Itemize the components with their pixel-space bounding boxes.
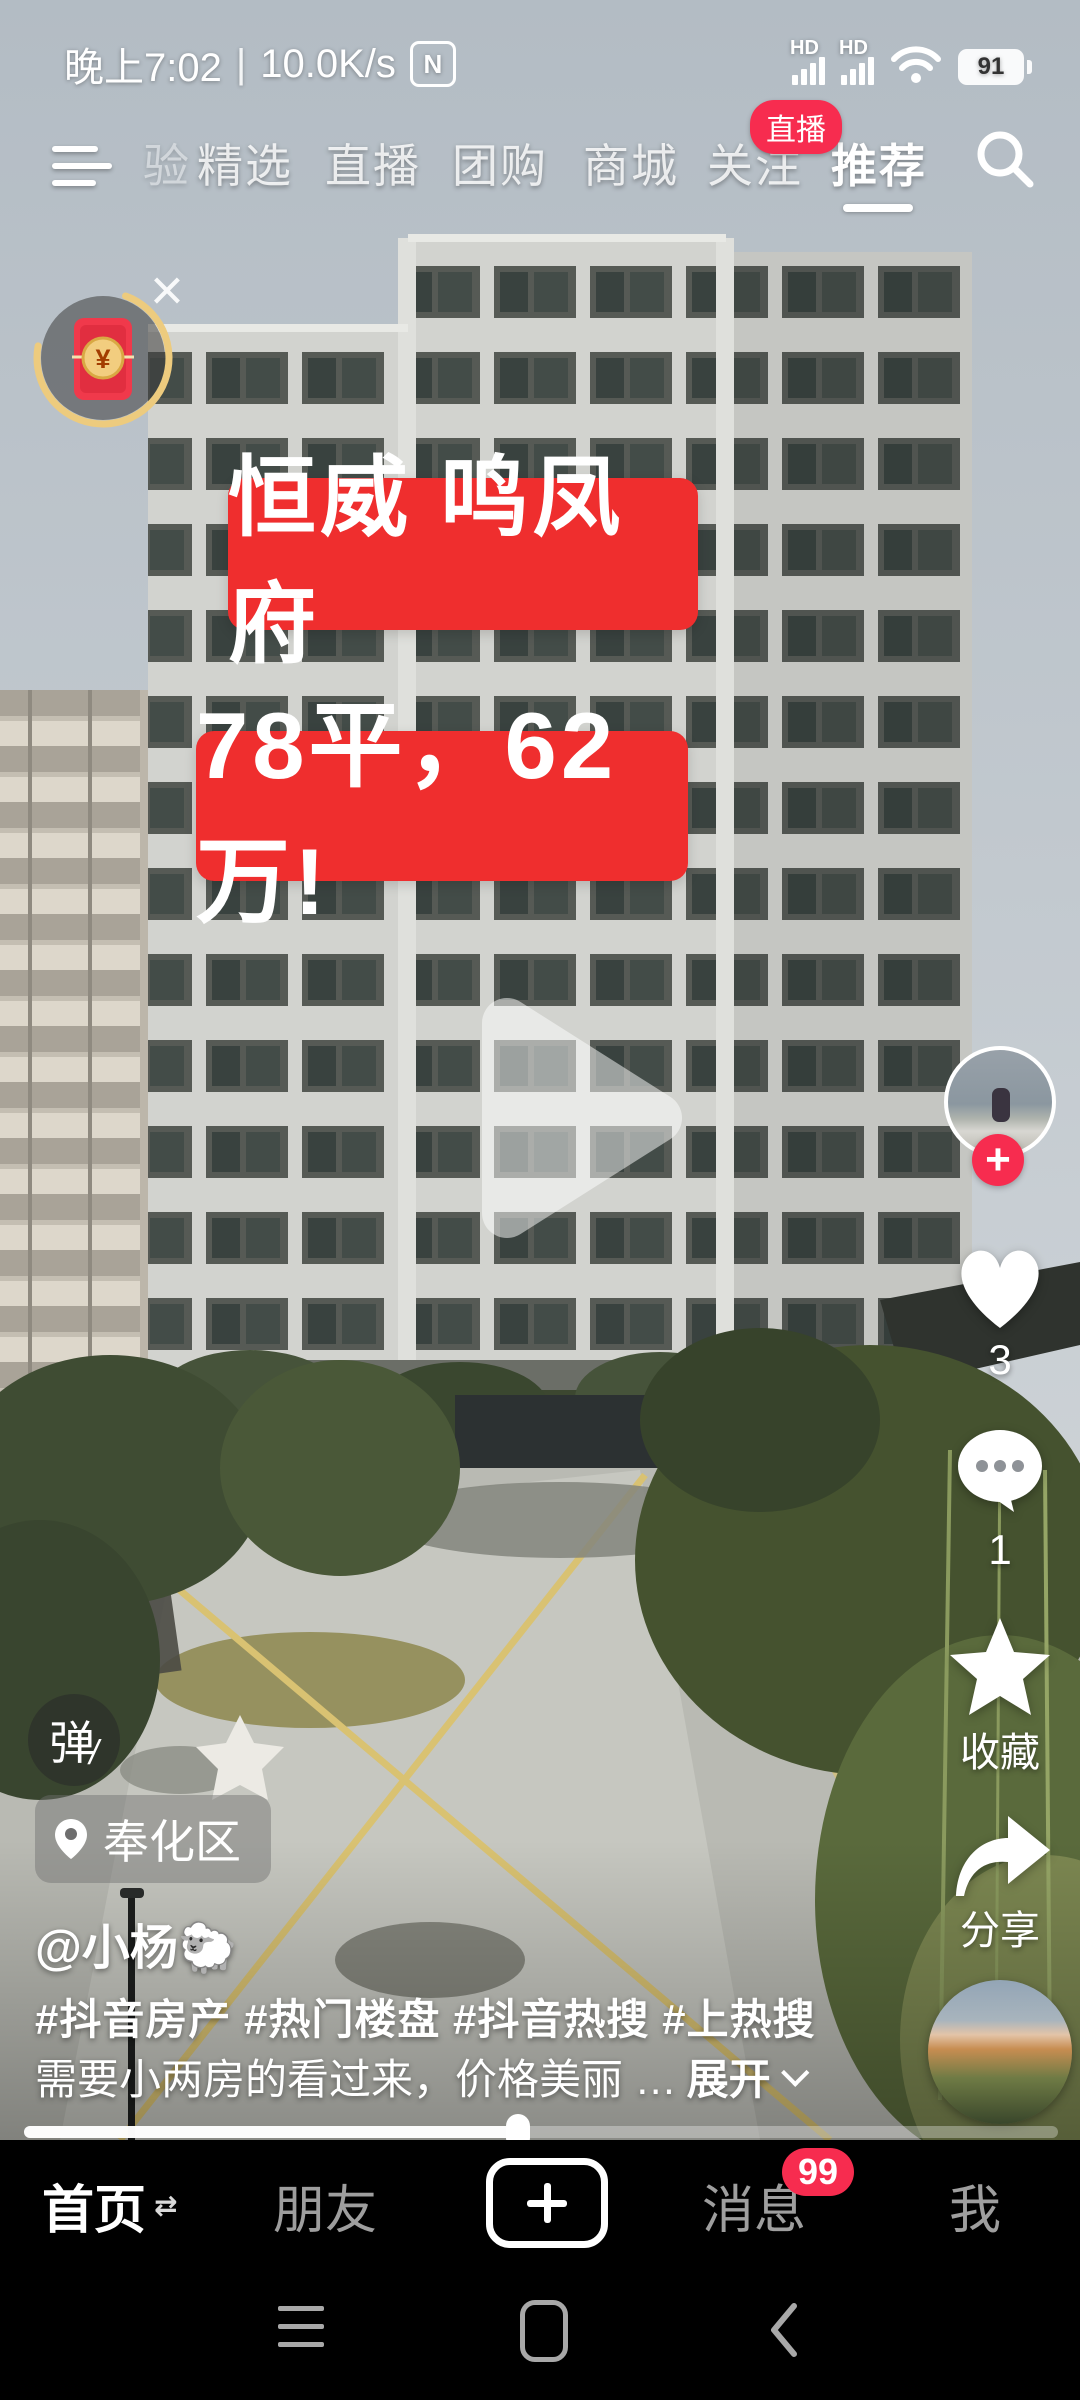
video-progress-fill [24, 2126, 516, 2138]
nfc-icon: N [410, 41, 456, 87]
coin-yuan-symbol: ¥ [95, 344, 110, 374]
create-post-button[interactable] [486, 2158, 608, 2248]
favorite-label: 收藏 [900, 1720, 1080, 1778]
network-speed: 10.0K/s [260, 42, 396, 87]
location-label: 奉化区 [103, 1806, 241, 1872]
danmu-toggle[interactable]: 弹 / [28, 1694, 120, 1786]
expand-button[interactable]: 展开 [687, 2046, 771, 2107]
hd-label: HD [790, 37, 819, 60]
tab-partial[interactable]: 验 [143, 130, 191, 196]
clock: 晚上7:02 [64, 35, 222, 93]
description-text: 需要小两房的看过来，价格美丽 … [35, 2046, 677, 2107]
live-badge[interactable]: 直播 [750, 100, 842, 154]
wifi-icon [890, 43, 942, 85]
home-switch-icon: ⇄ [154, 2189, 177, 2222]
active-tab-underline [843, 204, 913, 212]
douyin-app-screen: 晚上7:02 | 10.0K/s N HD HD 91 [0, 0, 1080, 2400]
favorite-star-icon[interactable] [946, 1616, 1054, 1718]
tab-featured[interactable]: 精选 [197, 130, 293, 196]
nav-me[interactable]: 我 [949, 2168, 1001, 2243]
comment-count: 1 [900, 1526, 1080, 1574]
tab-recommend[interactable]: 推荐 [831, 130, 927, 196]
comment-icon[interactable] [952, 1424, 1048, 1520]
status-divider: | [236, 42, 246, 87]
battery-icon: 91 [958, 49, 1024, 85]
nav-home[interactable]: 首页 ⇄ [42, 2168, 177, 2243]
author-username[interactable]: @小杨🐑 [35, 1908, 238, 1978]
share-label: 分享 [900, 1898, 1080, 1956]
nav-home-label: 首页 [42, 2168, 146, 2243]
search-icon[interactable] [972, 126, 1038, 192]
red-packet-close-icon[interactable]: × [150, 262, 184, 320]
hd-label: HD [839, 37, 868, 60]
play-icon[interactable] [462, 988, 692, 1248]
location-pin-icon [53, 1817, 89, 1861]
caption-description: 需要小两房的看过来，价格美丽 … 展开 [35, 2046, 801, 2107]
menu-icon[interactable] [52, 146, 114, 197]
video-price-banner: 78平，62万! [196, 731, 688, 881]
nav-friends[interactable]: 朋友 [273, 2168, 377, 2243]
tab-live[interactable]: 直播 [325, 130, 421, 196]
signal-sim2-icon: HD [841, 43, 874, 85]
like-count: 3 [900, 1336, 1080, 1384]
caption-hashtags[interactable]: #抖音房产 #热门楼盘 #抖音热搜 #上热搜 [35, 1986, 815, 2047]
back-icon[interactable] [768, 2302, 798, 2358]
status-bar: 晚上7:02 | 10.0K/s N HD HD 91 [64, 38, 1024, 90]
video-title-banner: 恒威 鸣凤府 [228, 478, 698, 630]
avatar-person [992, 1088, 1010, 1122]
home-icon[interactable] [520, 2300, 568, 2362]
signal-sim1-icon: HD [792, 43, 825, 85]
messages-badge: 99 [782, 2148, 854, 2196]
music-disc[interactable] [928, 1980, 1072, 2124]
android-nav-bar [0, 2300, 1080, 2400]
location-tag[interactable]: 奉化区 [35, 1795, 271, 1883]
follow-button[interactable]: + [972, 1134, 1024, 1186]
tab-group-buy[interactable]: 团购 [452, 130, 548, 196]
recents-icon[interactable] [278, 2306, 324, 2360]
like-icon[interactable] [950, 1238, 1050, 1334]
danmu-off-slash: / [89, 1734, 98, 1773]
share-icon[interactable] [946, 1810, 1054, 1898]
tab-mall[interactable]: 商城 [583, 130, 679, 196]
